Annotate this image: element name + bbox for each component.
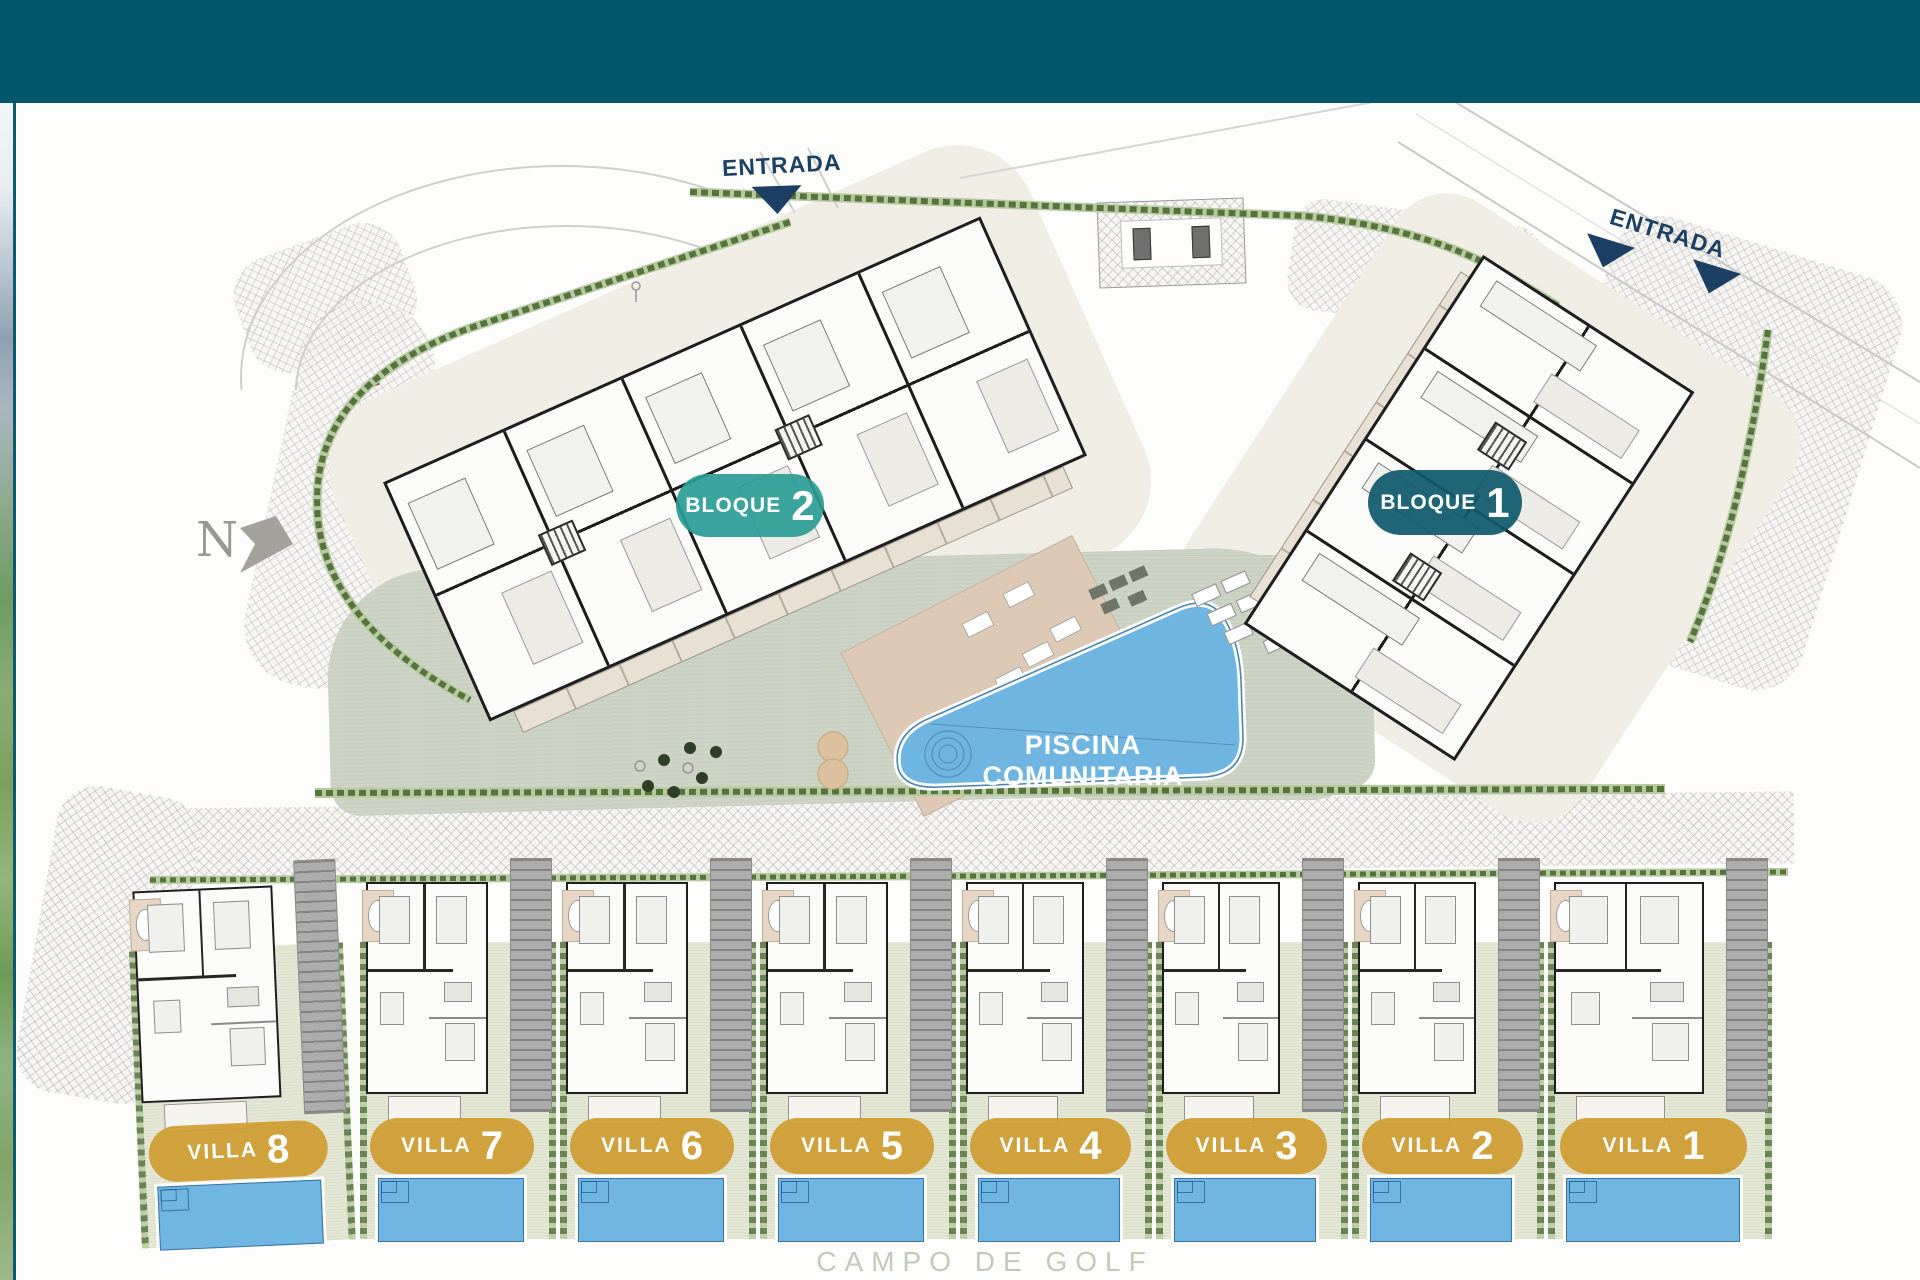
villa-pool [578,1178,724,1242]
villa-pool [378,1178,524,1242]
villa-floorplan [766,882,888,1094]
villa-pool [1370,1178,1512,1242]
villa-cell-1: VILLA1 [1546,878,1774,1245]
villa-cell-3: VILLA3 [1154,878,1350,1245]
villa-pool [778,1178,924,1242]
villa-floorplan [1554,882,1704,1094]
villa-driveway [1498,858,1540,1112]
villa-driveway [1726,858,1768,1112]
villa-8-badge[interactable]: VILLA8 [148,1119,329,1183]
villa-cell-6: VILLA6 [558,878,758,1245]
villa-cell-4: VILLA4 [958,878,1154,1245]
plaza-seating-area [1120,217,1223,268]
villa-driveway [710,858,752,1112]
villa-driveway [1302,858,1344,1112]
villa-number: 3 [1275,1126,1297,1166]
bloque-1-label: BLOQUE [1380,491,1476,515]
bloque-1-badge[interactable]: BLOQUE 1 [1368,470,1522,535]
villa-2-badge[interactable]: VILLA2 [1362,1118,1523,1174]
villa-number: 7 [481,1126,503,1166]
bloque-2-number: 2 [791,485,814,527]
villa-pool [978,1178,1120,1242]
villa-label: VILLA [1392,1134,1463,1158]
pergola-icon [1132,228,1151,261]
villa-floorplan [966,882,1084,1094]
villa-pool [1566,1178,1740,1242]
villa-label: VILLA [1000,1134,1071,1158]
villa-floorplan [366,882,488,1094]
villa-label: VILLA [801,1134,872,1158]
villas-row: VILLA8VILLA7VILLA6VILLA5VILLA4VILLA3VILL… [0,878,1920,1248]
villa-3-badge[interactable]: VILLA3 [1166,1118,1327,1174]
header-bar [0,0,1920,103]
bloque-2-badge[interactable]: BLOQUE 2 [676,474,824,537]
villa-label: VILLA [187,1138,259,1165]
villa-driveway [510,858,552,1112]
compass-n-letter: N [196,512,238,568]
pergola-icon [1191,226,1210,259]
entrance-label-left: ENTRADA [721,149,842,182]
villa-floorplan [132,885,281,1103]
left-divider-line [13,103,16,1280]
golf-course-label: CAMPO DE GOLF [750,1246,1220,1278]
villa-label: VILLA [1603,1134,1674,1158]
villa-floorplan [1358,882,1476,1094]
villa-cell-2: VILLA2 [1350,878,1546,1245]
villa-1-badge[interactable]: VILLA1 [1560,1118,1747,1174]
entrance-plaza [1097,197,1247,288]
villa-5-badge[interactable]: VILLA5 [770,1118,934,1174]
entrance-arrow-icon [752,185,803,215]
villa-label: VILLA [401,1134,472,1158]
villa-number: 1 [1682,1126,1704,1166]
communal-pool-label: PISCINA COMUNITARIA [938,730,1228,792]
compass-north: N [196,512,238,568]
bloque-2-label: BLOQUE [685,494,781,518]
villa-number: 5 [881,1126,903,1166]
villa-driveway [1106,858,1148,1112]
villa-floorplan [566,882,688,1094]
villa-pool [1174,1178,1316,1242]
site-plan-page: BLOQUE 2 BLOQUE 1 ENTRADA ENTRADA N PISC… [0,0,1920,1280]
villa-4-badge[interactable]: VILLA4 [970,1118,1131,1174]
villa-cell-5: VILLA5 [758,878,958,1245]
golf-photo-strip [0,103,13,1280]
villa-floorplan [1162,882,1280,1094]
villa-cell-8: VILLA8 [124,878,358,1254]
villa-pool [157,1180,324,1251]
villa-6-badge[interactable]: VILLA6 [570,1118,734,1174]
villa-label: VILLA [601,1134,672,1158]
compass-arrow-icon [240,516,294,574]
villa-label: VILLA [1196,1134,1267,1158]
villa-cell-7: VILLA7 [358,878,558,1245]
villa-driveway [910,858,952,1112]
villa-number: 8 [266,1129,290,1170]
bloque-1-number: 1 [1486,482,1509,524]
villa-7-badge[interactable]: VILLA7 [370,1118,534,1174]
villa-number: 6 [681,1126,703,1166]
villa-number: 2 [1471,1126,1493,1166]
villa-number: 4 [1079,1126,1101,1166]
